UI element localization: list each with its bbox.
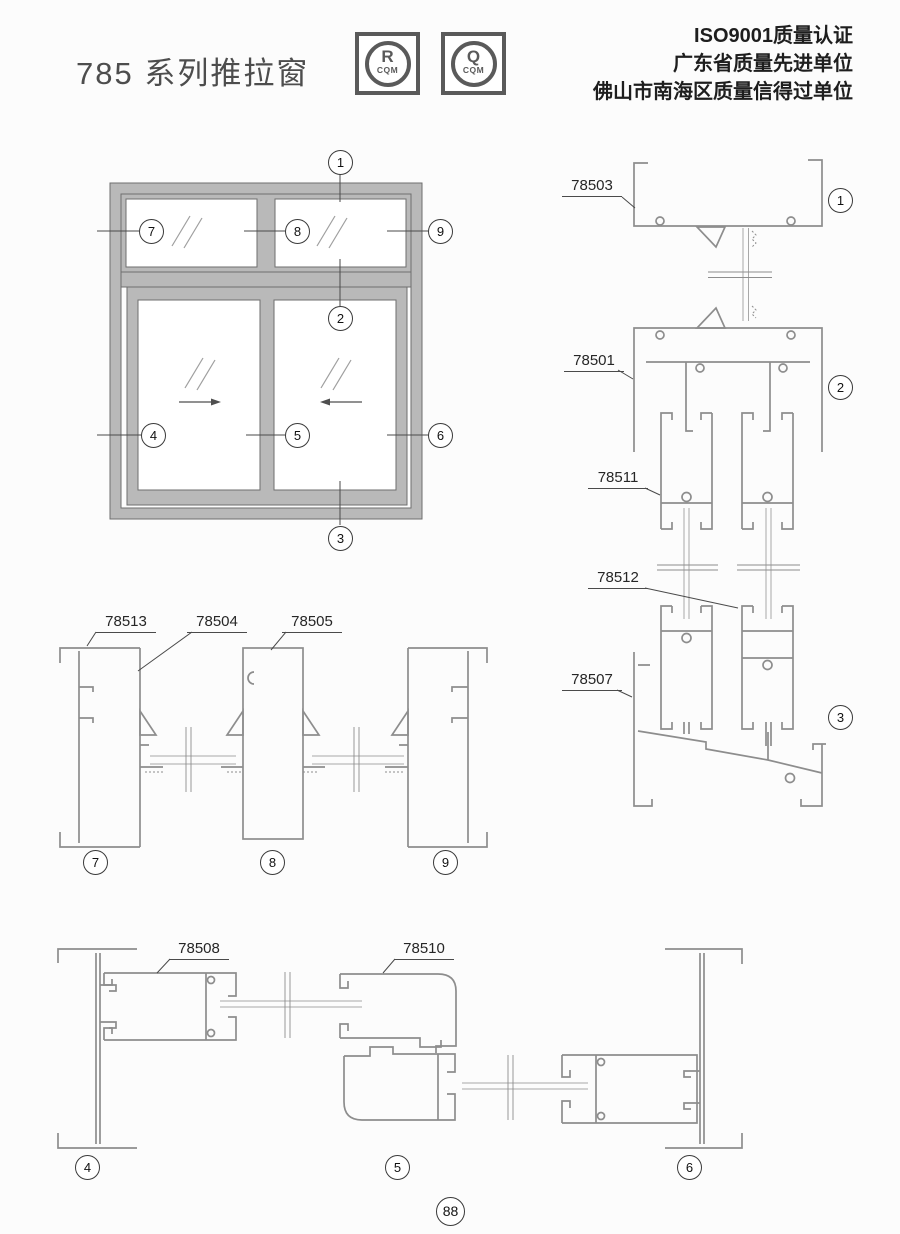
section-callout-6: 6 (677, 1155, 702, 1180)
section-callout-4: 4 (75, 1155, 100, 1180)
certification-text-block: ISO9001质量认证 广东省质量先进单位 佛山市南海区质量信得过单位 (593, 22, 853, 106)
label-78503: 78503 (562, 177, 622, 197)
elevation-callout-1: 1 (328, 150, 353, 175)
lower-horizontal-sections-drawing (58, 949, 742, 1148)
cqm-q-certification-logo: Q CQM (441, 32, 506, 95)
label-78504: 78504 (187, 613, 247, 633)
elevation-callout-9: 9 (428, 219, 453, 244)
cqm-q-logo-symbol: Q (455, 48, 493, 65)
elevation-callout-5: 5 (285, 423, 310, 448)
label-78501: 78501 (564, 352, 624, 372)
section-callout-8: 8 (260, 850, 285, 875)
cqm-r-logo-symbol: R (369, 48, 407, 65)
label-78512: 78512 (588, 569, 648, 589)
label-78507: 78507 (562, 671, 622, 691)
certification-line-2: 广东省质量先进单位 (593, 50, 853, 78)
label-78508: 78508 (169, 940, 229, 960)
section-callout-2: 2 (828, 375, 853, 400)
elevation-callout-4: 4 (141, 423, 166, 448)
catalog-page: 785 系列推拉窗 R CQM Q CQM ISO9001质量认证 广东省质量先… (0, 0, 900, 1234)
vertical-sections-drawing (634, 160, 826, 806)
label-78511: 78511 (588, 469, 648, 489)
cqm-r-logo-circle: R CQM (365, 41, 411, 87)
section-callout-3: 3 (828, 705, 853, 730)
section-callout-1: 1 (828, 188, 853, 213)
certification-line-1: ISO9001质量认证 (593, 22, 853, 50)
upper-horizontal-sections-drawing (60, 648, 487, 847)
cqm-q-logo-caption: CQM (455, 65, 493, 75)
section-callout-7: 7 (83, 850, 108, 875)
elevation-callout-7: 7 (139, 219, 164, 244)
cqm-r-logo-caption: CQM (369, 65, 407, 75)
certification-line-3: 佛山市南海区质量信得过单位 (593, 78, 853, 106)
label-78510: 78510 (394, 940, 454, 960)
elevation-callout-8: 8 (285, 219, 310, 244)
cqm-r-certification-logo: R CQM (355, 32, 420, 95)
label-78505: 78505 (282, 613, 342, 633)
page-title: 785 系列推拉窗 (76, 48, 309, 93)
cqm-q-logo-circle: Q CQM (451, 41, 497, 87)
elevation-callout-3: 3 (328, 526, 353, 551)
elevation-callout-6: 6 (428, 423, 453, 448)
elevation-callout-2: 2 (328, 306, 353, 331)
label-78513: 78513 (96, 613, 156, 633)
section-callout-5: 5 (385, 1155, 410, 1180)
page-number-badge: 88 (436, 1197, 465, 1226)
section-callout-9: 9 (433, 850, 458, 875)
